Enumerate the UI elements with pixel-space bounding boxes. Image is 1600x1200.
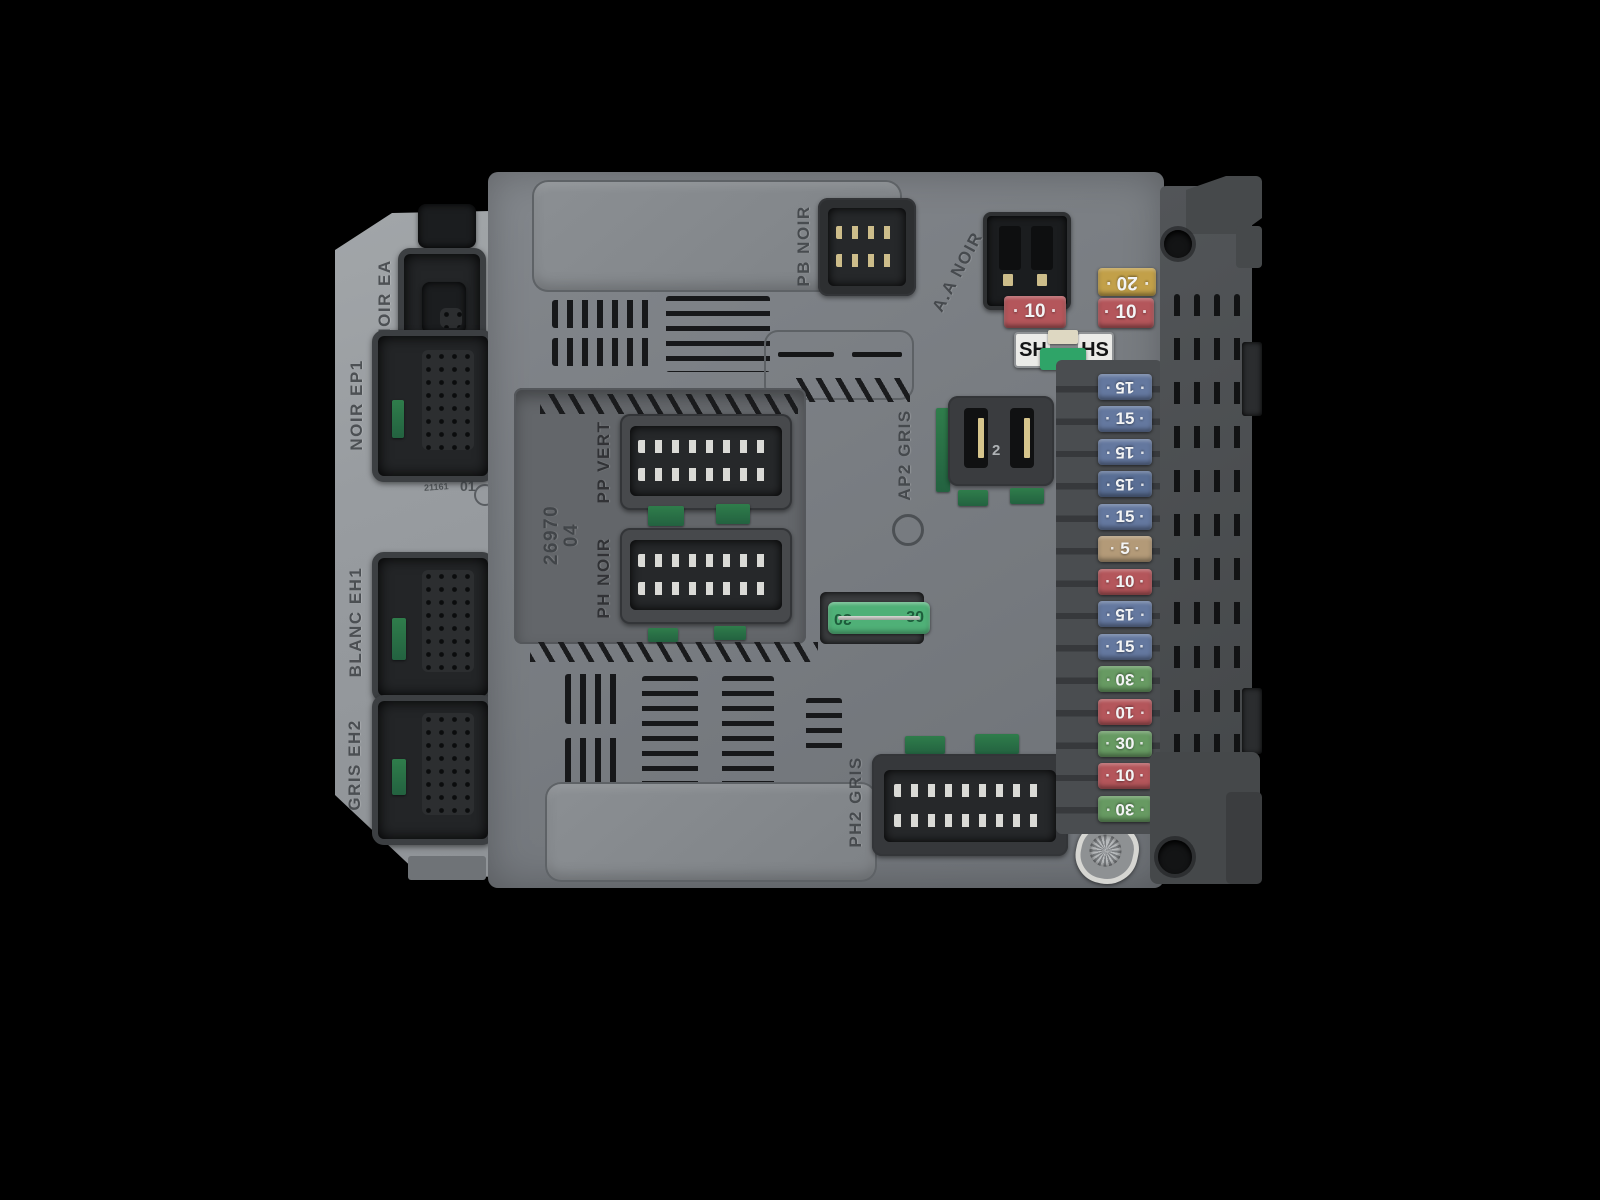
hatch-strip-lower (530, 642, 818, 662)
fuse-top-10a-right: 10 (1098, 298, 1154, 328)
vent-group-low-left-b (565, 738, 619, 788)
label-blanc-eh1: BLANC EH1 (346, 567, 366, 678)
top-clip-foot (1236, 226, 1262, 268)
pcb-tab-3 (648, 628, 678, 642)
noir-ea-pins (440, 308, 462, 328)
maxi-fuse-30a: 30 30 (828, 602, 930, 634)
molded-circle-mark (892, 514, 924, 546)
vent-group-top-mid (666, 296, 770, 372)
part-number: 26970 04 (542, 505, 582, 565)
mold-mark-small: 21161 (424, 481, 449, 493)
fuse-top-20a: 20 (1098, 268, 1156, 296)
gris-eh2-pcb (392, 759, 406, 795)
module-foot (408, 856, 486, 880)
top-mount-hole (1164, 230, 1192, 258)
label-ph2-gris: PH2 GRIS (846, 756, 866, 847)
vent-group-top-left-a (552, 300, 652, 328)
connector-ap2-gris: 2 (948, 396, 1054, 486)
vent-group-top-left-b (552, 338, 652, 366)
part-number-main: 26970 (541, 505, 562, 565)
bottom-clip-foot (1226, 792, 1262, 884)
part-number-suffix: 04 (561, 523, 582, 547)
connector-ph2-gris (872, 754, 1068, 856)
pcb-tab-4 (714, 626, 746, 640)
fuse-strip-holder (1056, 360, 1162, 834)
noir-ep1-pcb (392, 400, 404, 438)
pcb-tab-2 (716, 504, 750, 524)
side-tab-lower (1242, 688, 1262, 754)
noir-ea-plug (422, 282, 466, 334)
noir-ep1-pins (422, 350, 474, 450)
side-tab-upper (1242, 342, 1262, 416)
vent-group-low-mid-a (642, 676, 698, 788)
bottom-mount-hole (1158, 840, 1192, 874)
date-code-wheel (1086, 832, 1124, 870)
vent-dash-a (778, 352, 834, 357)
vent-group-low-mid-b (722, 676, 774, 788)
ph2-pcb-tab-a (905, 736, 945, 754)
vent-dash-b (852, 352, 902, 357)
fuse-top-10a-left: 10 (1004, 296, 1066, 328)
spare-fuse-cream (1048, 330, 1078, 344)
ap2-pcb-tab-b (1010, 488, 1044, 504)
mold-mark-cavity: 01 (460, 478, 476, 494)
gris-eh2-pins (422, 713, 474, 815)
right-vent-panel (1166, 294, 1248, 806)
hatch-strip-bay-top (540, 394, 798, 414)
vent-group-low-right (806, 698, 842, 750)
top-small-connector (418, 204, 476, 248)
vent-group-low-left-a (565, 674, 619, 724)
ap2-cavity-number: 2 (992, 442, 1000, 459)
blanc-eh1-pins (422, 570, 474, 672)
label-noir-ep1: NOIR EP1 (347, 359, 367, 450)
ap2-pcb-tab-a (958, 490, 988, 506)
socket-noir-ep1 (372, 330, 494, 482)
photo-stage: NOIR EA NOIR EP1 21161 01 BLANC EH1 GRIS… (0, 0, 1600, 1200)
hatch-strip-top (790, 378, 910, 402)
ph2-pcb-tab-b (975, 734, 1019, 754)
connector-pp-vert (620, 414, 792, 510)
label-ap2-gris: AP2 GRIS (895, 409, 915, 500)
label-pp-vert: PP VERT (594, 421, 614, 504)
socket-gris-eh2 (372, 695, 494, 845)
pcb-tab-1 (648, 506, 684, 526)
blanc-eh1-pcb (392, 618, 406, 660)
label-noir-ea: NOIR EA (375, 259, 395, 340)
label-gris-eh2: GRIS EH2 (345, 719, 365, 810)
label-ph-noir: PH NOIR (594, 537, 614, 618)
socket-blanc-eh1 (372, 552, 494, 702)
connector-ph-noir (620, 528, 792, 624)
connector-pb-noir (818, 198, 916, 296)
label-pb-noir: PB NOIR (794, 205, 814, 286)
bottom-lid-panel (545, 782, 877, 882)
